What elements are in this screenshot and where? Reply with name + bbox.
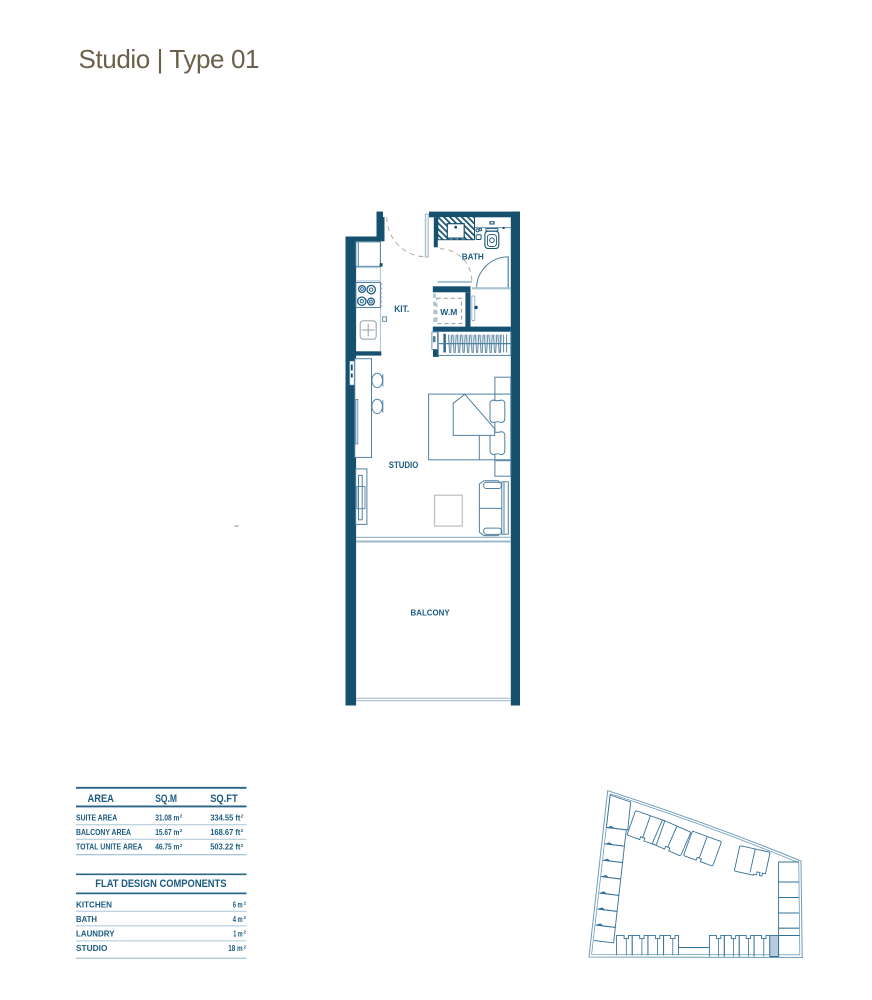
- svg-text:2: 2: [241, 843, 244, 848]
- svg-text:SUITE AREA: SUITE AREA: [76, 812, 117, 822]
- svg-text:KIT.: KIT.: [394, 304, 409, 314]
- svg-text:334.55 ft: 334.55 ft: [210, 812, 240, 822]
- svg-text:2: 2: [180, 828, 183, 833]
- svg-text:1 m: 1 m: [233, 929, 243, 939]
- svg-text:STUDIO: STUDIO: [76, 943, 108, 953]
- svg-text:AREA: AREA: [88, 793, 115, 805]
- svg-text:2: 2: [180, 843, 183, 848]
- svg-text:2: 2: [244, 901, 247, 906]
- svg-text:2: 2: [244, 944, 247, 949]
- svg-text:2: 2: [241, 814, 244, 819]
- svg-text:BALCONY: BALCONY: [411, 607, 450, 617]
- svg-text:46.75 m: 46.75 m: [155, 842, 179, 852]
- svg-text:TOTAL UNITE AREA: TOTAL UNITE AREA: [76, 842, 143, 852]
- svg-text:FLAT DESIGN COMPONENTS: FLAT DESIGN COMPONENTS: [95, 878, 226, 890]
- svg-text:LAUNDRY: LAUNDRY: [76, 929, 115, 939]
- svg-text:BATH: BATH: [76, 914, 97, 924]
- svg-text:W.M: W.M: [440, 307, 457, 317]
- svg-text:31.08 m: 31.08 m: [155, 812, 179, 822]
- svg-text:15.67 m: 15.67 m: [155, 827, 179, 837]
- svg-text:6 m: 6 m: [233, 899, 243, 909]
- svg-text:168.67 ft: 168.67 ft: [210, 827, 240, 837]
- svg-text:SQ.FT: SQ.FT: [210, 793, 238, 805]
- svg-text:4 m: 4 m: [233, 914, 243, 924]
- svg-text:2: 2: [180, 814, 183, 819]
- svg-text:SQ.M: SQ.M: [155, 793, 177, 805]
- svg-text:18 m: 18 m: [228, 943, 243, 953]
- svg-text:2: 2: [244, 930, 247, 935]
- svg-text:STUDIO: STUDIO: [389, 460, 419, 470]
- svg-text:2: 2: [241, 828, 244, 833]
- svg-text:503.22 ft: 503.22 ft: [210, 842, 240, 852]
- svg-text:KITCHEN: KITCHEN: [76, 899, 112, 909]
- svg-text:BATH: BATH: [462, 251, 484, 261]
- svg-text:BALCONY AREA: BALCONY AREA: [76, 827, 131, 837]
- svg-text:2: 2: [244, 915, 247, 920]
